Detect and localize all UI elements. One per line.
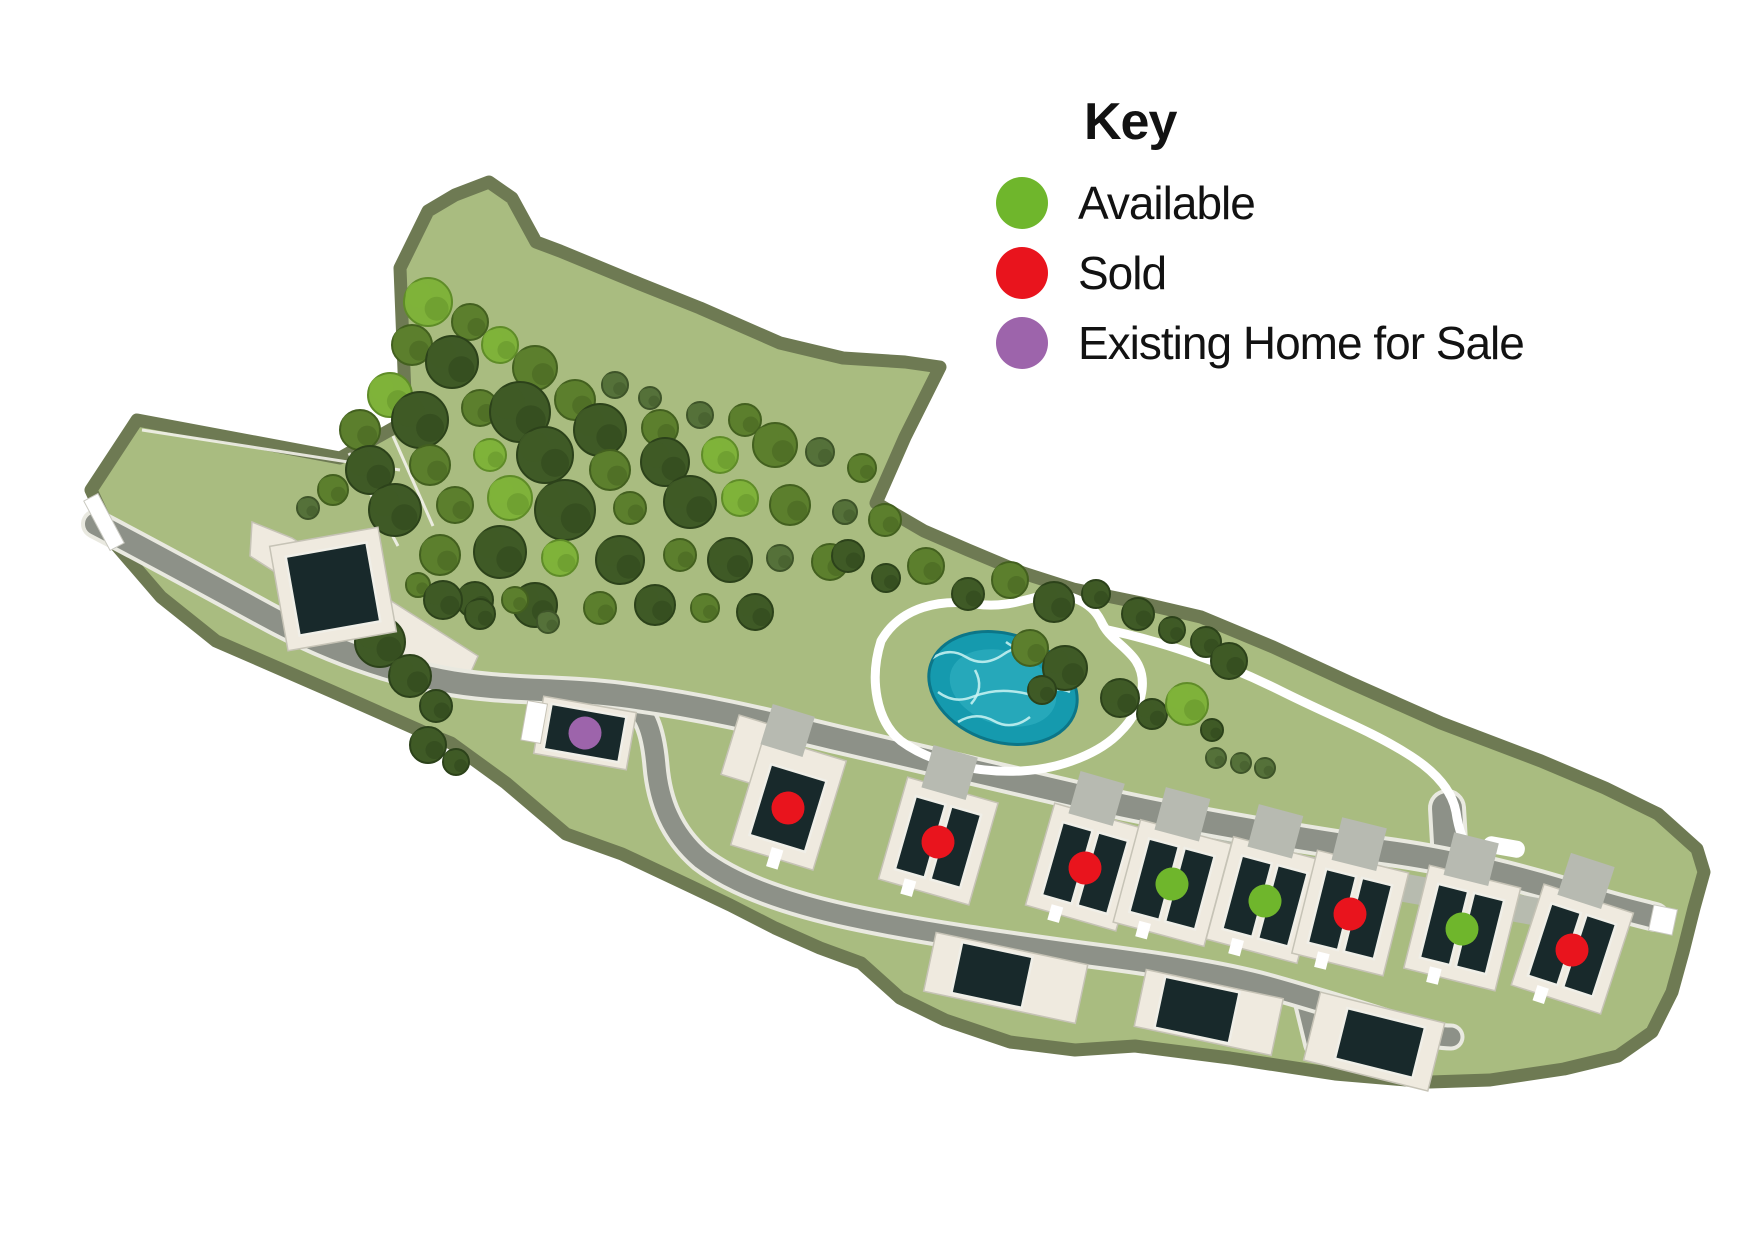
- tree-icon: [872, 564, 900, 592]
- tree-icon: [806, 438, 834, 466]
- legend-item-sold: Sold: [996, 238, 1524, 308]
- tree-icon: [426, 336, 478, 388]
- tree-icon: [574, 404, 626, 456]
- tree-icon: [1255, 758, 1275, 778]
- tree-icon: [596, 536, 644, 584]
- tree-icon: [340, 410, 380, 450]
- tree-icon: [542, 540, 578, 576]
- tree-icon: [482, 327, 518, 363]
- tree-icon: [602, 372, 628, 398]
- tree-icon: [404, 278, 452, 326]
- tree-icon: [687, 402, 713, 428]
- tree-icon: [1101, 679, 1139, 717]
- legend: Key Available Sold Existing Home for Sal…: [996, 92, 1524, 378]
- tree-icon: [517, 427, 573, 483]
- tree-icon: [952, 578, 984, 610]
- tree-icon: [1122, 598, 1154, 630]
- tree-icon: [1012, 630, 1048, 666]
- tree-icon: [635, 585, 675, 625]
- existing-home-dot-icon: [996, 317, 1048, 369]
- tree-icon: [443, 749, 469, 775]
- tree-icon: [452, 304, 488, 340]
- tree-icon: [1082, 580, 1110, 608]
- tree-icon: [1028, 676, 1056, 704]
- tree-icon: [1159, 617, 1185, 643]
- tree-icon: [992, 562, 1028, 598]
- tree-icon: [392, 392, 448, 448]
- sold-dot-icon: [996, 247, 1048, 299]
- legend-item-existing: Existing Home for Sale: [996, 308, 1524, 378]
- tree-icon: [424, 581, 462, 619]
- tree-icon: [410, 727, 446, 763]
- tree-icon: [389, 655, 431, 697]
- tree-icon: [737, 594, 773, 630]
- legend-item-available: Available: [996, 168, 1524, 238]
- legend-label-existing: Existing Home for Sale: [1078, 316, 1524, 370]
- building: [270, 527, 397, 650]
- tree-icon: [767, 545, 793, 571]
- tree-icon: [639, 387, 661, 409]
- tree-icon: [584, 592, 616, 624]
- tree-icon: [590, 450, 630, 490]
- tree-icon: [833, 500, 857, 524]
- legend-label-available: Available: [1078, 176, 1255, 230]
- legend-label-sold: Sold: [1078, 246, 1166, 300]
- tree-icon: [318, 475, 348, 505]
- tree-icon: [537, 611, 559, 633]
- tree-icon: [848, 454, 876, 482]
- tree-icon: [420, 690, 452, 722]
- tree-icon: [1137, 699, 1167, 729]
- tree-icon: [614, 492, 646, 524]
- tree-icon: [753, 423, 797, 467]
- tree-icon: [437, 487, 473, 523]
- tree-icon: [488, 476, 532, 520]
- tree-icon: [474, 526, 526, 578]
- tree-icon: [1166, 683, 1208, 725]
- tree-icon: [722, 480, 758, 516]
- tree-icon: [1211, 643, 1247, 679]
- tree-icon: [410, 445, 450, 485]
- tree-icon: [420, 535, 460, 575]
- tree-icon: [1231, 753, 1251, 773]
- tree-icon: [908, 548, 944, 584]
- tree-icon: [465, 599, 495, 629]
- tree-icon: [708, 538, 752, 582]
- tree-icon: [691, 594, 719, 622]
- tree-icon: [869, 504, 901, 536]
- tree-icon: [297, 497, 319, 519]
- tree-icon: [502, 587, 528, 613]
- legend-title: Key: [1084, 92, 1524, 152]
- tree-icon: [664, 539, 696, 571]
- tree-icon: [832, 540, 864, 572]
- available-dot-icon: [996, 177, 1048, 229]
- tree-icon: [770, 485, 810, 525]
- end-gate: [1649, 905, 1678, 935]
- tree-icon: [729, 404, 761, 436]
- tree-icon: [1034, 582, 1074, 622]
- tree-icon: [474, 439, 506, 471]
- tree-icon: [664, 476, 716, 528]
- tree-icon: [1201, 719, 1223, 741]
- tree-icon: [702, 437, 738, 473]
- tree-icon: [1206, 748, 1226, 768]
- tree-icon: [535, 480, 595, 540]
